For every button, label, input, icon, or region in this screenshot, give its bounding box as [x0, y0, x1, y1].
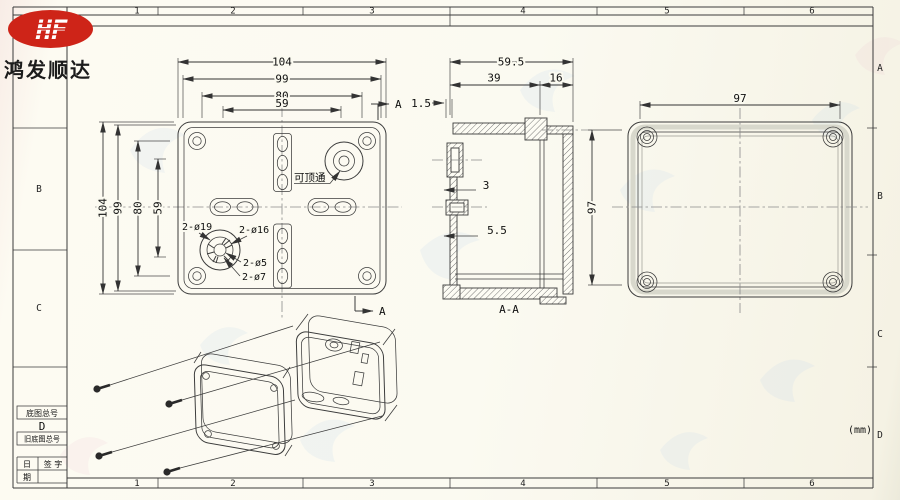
dim-front-104-top: 104 [272, 56, 292, 69]
company-name: 鸿发顺达 [4, 58, 92, 82]
company-logo: HF 鸿发顺达 [4, 10, 93, 82]
title-block-base-no: 底图总号 [26, 408, 58, 418]
dim-front-59-top: 59 [275, 97, 288, 110]
grid-row-right-c: C [877, 329, 883, 340]
grid-col-bottom-4: 4 [520, 479, 525, 489]
label-2xd16: 2-ø16 [239, 225, 269, 236]
dim-section-16: 16 [549, 72, 562, 85]
dim-section-5-5: 5.5 [487, 224, 507, 237]
dim-front-80-left: 80 [132, 201, 145, 214]
dim-front-104-left: 104 [97, 198, 110, 218]
label-2xd5: 2-ø5 [243, 258, 267, 269]
drawing-sheet: 1 2 3 4 5 6 1 2 3 4 5 6 A B C D B C (mm)… [0, 0, 900, 500]
grid-row-right-a: A [877, 63, 883, 74]
grid-col-bottom-6: 6 [809, 479, 814, 489]
dim-section-59-5: 59.5 [498, 56, 525, 69]
section-marker-bottom: A [379, 305, 386, 318]
title-block: 底图总号 D 旧底图总号 日 签 字 期 [17, 406, 67, 483]
iso-lid [194, 352, 292, 456]
title-block-old-base-no: 旧底图总号 [24, 435, 60, 444]
dim-section-3: 3 [483, 179, 490, 192]
units-note: (mm) [848, 425, 872, 436]
grid-col-bottom-2: 2 [230, 479, 235, 489]
front-gland-knockout [200, 230, 240, 270]
back-view: 97 97 [586, 92, 869, 313]
section-view-label: A-A [499, 303, 519, 316]
dim-section-1-5: 1.5 [411, 97, 431, 110]
grid-row-left-c: C [36, 303, 42, 314]
drawing-canvas: 1 2 3 4 5 6 1 2 3 4 5 6 A B C D B C (mm)… [0, 0, 900, 500]
dim-section-39: 39 [487, 72, 500, 85]
grid-col-bottom-5: 5 [664, 479, 669, 489]
front-round-knockout [325, 142, 363, 180]
isometric-view [93, 314, 397, 476]
title-block-date-bottom: 期 [23, 473, 31, 482]
dim-front-59-left: 59 [152, 201, 165, 214]
iso-box-body [296, 314, 397, 421]
dim-front-99-left: 99 [112, 201, 125, 214]
grid-col-top-5: 5 [664, 7, 669, 17]
front-knockout-strip-top [274, 134, 292, 192]
front-dimensions-top: 104 99 80 59 [178, 56, 386, 119]
grid-row-left-b: B [36, 184, 42, 195]
title-block-grid-letter: D [39, 420, 46, 433]
dim-back-97-top: 97 [733, 92, 746, 105]
grid-col-bottom-1: 1 [134, 479, 139, 489]
section-view: 59.5 39 16 1.5 [411, 56, 592, 317]
grid-col-top-2: 2 [230, 7, 235, 17]
front-view: 2-ø19 2-ø16 2-ø5 2-ø7 可顶通 104 99 80 59 [95, 56, 402, 319]
grid-col-top-3: 3 [369, 7, 374, 17]
title-block-date-top: 日 [23, 460, 31, 469]
label-knockout: 可顶通 [294, 172, 326, 184]
section-body [443, 118, 573, 304]
grid-col-top-6: 6 [809, 7, 814, 17]
grid-col-top-4: 4 [520, 7, 525, 17]
grid-col-bottom-3: 3 [369, 479, 374, 489]
watermark-pattern [60, 37, 900, 475]
section-marker-top: A [395, 98, 402, 111]
grid-row-right-d: D [877, 430, 883, 441]
grid-row-right-b: B [877, 191, 883, 202]
label-2xd7: 2-ø7 [242, 272, 266, 283]
label-2xd19: 2-ø19 [182, 222, 212, 233]
logo-text: HF [35, 15, 68, 46]
front-knockout-strip-bottom [274, 224, 292, 288]
dim-back-97-left: 97 [586, 201, 599, 214]
title-block-sign: 签 字 [44, 459, 63, 469]
front-feature-labels: 2-ø19 2-ø16 2-ø5 2-ø7 可顶通 [182, 171, 340, 283]
iso-screws [93, 326, 382, 476]
dim-front-99-top: 99 [275, 73, 288, 86]
grid-col-top-1: 1 [134, 7, 139, 17]
